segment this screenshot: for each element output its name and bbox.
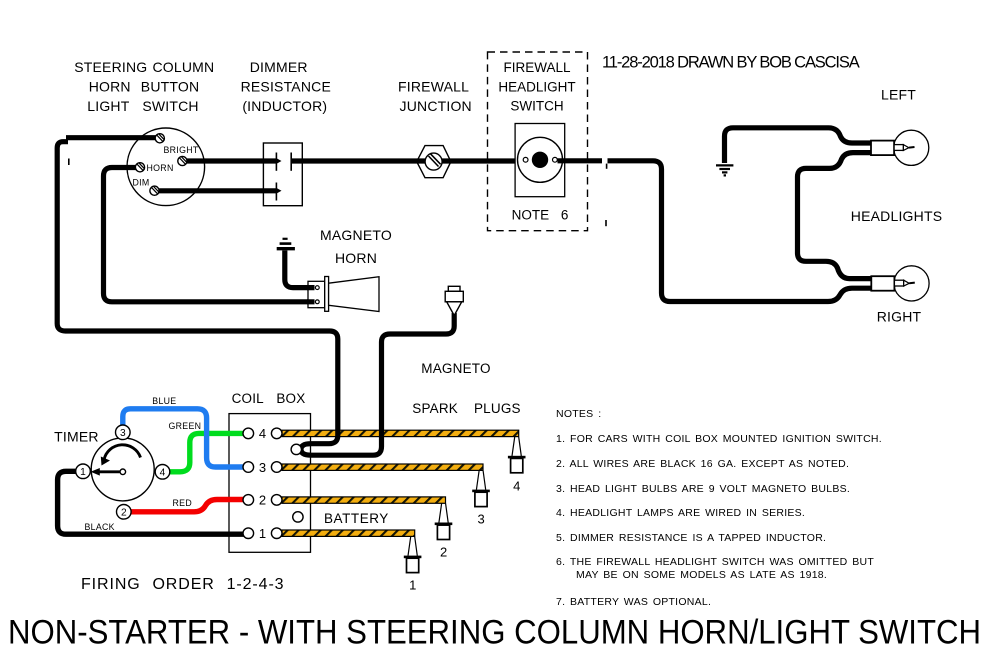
svg-text:3: 3 bbox=[120, 428, 126, 439]
svg-text:DIM: DIM bbox=[133, 178, 150, 188]
svg-text:4. HEADLIGHT LAMPS ARE WIRED: 4. HEADLIGHT LAMPS ARE WIRED IN SERIES. bbox=[556, 507, 805, 519]
svg-text:DIMMER: DIMMER bbox=[250, 59, 308, 75]
svg-text:FIREWALL: FIREWALL bbox=[503, 60, 571, 75]
svg-text:JUNCTION: JUNCTION bbox=[400, 98, 472, 114]
svg-text:HORN: HORN bbox=[335, 250, 377, 266]
svg-text:11-28-2018 DRAWN BY BOB CASCIS: 11-28-2018 DRAWN BY BOB CASCISA bbox=[602, 54, 860, 72]
svg-text:2: 2 bbox=[121, 507, 127, 518]
svg-text:MAGNETO: MAGNETO bbox=[320, 227, 392, 243]
svg-text:HEADLIGHTS: HEADLIGHTS bbox=[851, 208, 942, 224]
svg-text:6. THE FIREWALL HEADLIGHT SWI: 6. THE FIREWALL HEADLIGHT SWITCH WAS OMI… bbox=[556, 556, 874, 568]
svg-text:NOTE 6: NOTE 6 bbox=[512, 208, 569, 223]
svg-text:1: 1 bbox=[80, 467, 86, 478]
svg-text:MAGNETO: MAGNETO bbox=[421, 361, 490, 376]
svg-text:2: 2 bbox=[440, 545, 447, 560]
svg-text:LEFT: LEFT bbox=[881, 87, 916, 103]
svg-text:RED: RED bbox=[173, 498, 192, 508]
svg-text:5. DIMMER RESISTANCE IS A TAP: 5. DIMMER RESISTANCE IS A TAPPED INDUCTO… bbox=[556, 532, 826, 544]
svg-text:BRIGHT: BRIGHT bbox=[164, 145, 199, 155]
svg-text:COIL BOX: COIL BOX bbox=[232, 391, 306, 406]
svg-text:1: 1 bbox=[409, 578, 416, 593]
svg-text:4: 4 bbox=[513, 479, 520, 494]
svg-text:STEERING COLUMN: STEERING COLUMN bbox=[74, 59, 214, 75]
svg-text:1. FOR CARS WITH COIL BOX MOU: 1. FOR CARS WITH COIL BOX MOUNTED IGNITI… bbox=[556, 433, 882, 445]
svg-text:HEADLIGHT: HEADLIGHT bbox=[498, 80, 575, 95]
svg-text:3. HEAD LIGHT BULBS ARE 9 VOL: 3. HEAD LIGHT BULBS ARE 9 VOLT MAGNETO B… bbox=[556, 483, 850, 495]
svg-text:BATTERY: BATTERY bbox=[324, 511, 389, 526]
svg-text:NON-STARTER - WITH STEERING CO: NON-STARTER - WITH STEERING COLUMN HORN/… bbox=[8, 614, 981, 652]
svg-text:2. ALL WIRES ARE BLACK 16 GA.: 2. ALL WIRES ARE BLACK 16 GA. EXCEPT AS … bbox=[556, 458, 849, 470]
svg-text:FIREWALL: FIREWALL bbox=[398, 78, 469, 94]
svg-text:HORN: HORN bbox=[147, 163, 174, 173]
svg-text:1: 1 bbox=[259, 526, 266, 541]
svg-text:(INDUCTOR): (INDUCTOR) bbox=[242, 98, 327, 114]
svg-text:4: 4 bbox=[160, 467, 166, 478]
svg-text:BLUE: BLUE bbox=[152, 396, 176, 406]
svg-text:7. BATTERY WAS OPTIONAL.: 7. BATTERY WAS OPTIONAL. bbox=[556, 596, 711, 608]
svg-text:RIGHT: RIGHT bbox=[877, 309, 922, 325]
svg-text:NOTES :: NOTES : bbox=[556, 408, 601, 420]
svg-text:TIMER: TIMER bbox=[54, 429, 99, 445]
svg-text:FIRING ORDER 1-2-4-3: FIRING ORDER 1-2-4-3 bbox=[81, 576, 284, 593]
svg-text:LIGHT SWITCH: LIGHT SWITCH bbox=[87, 98, 198, 114]
svg-text:BLACK: BLACK bbox=[85, 522, 115, 532]
svg-text:3: 3 bbox=[477, 512, 484, 527]
svg-text:SPARK PLUGS: SPARK PLUGS bbox=[412, 401, 520, 416]
svg-text:HORN BUTTON: HORN BUTTON bbox=[89, 78, 200, 94]
svg-text:SWITCH: SWITCH bbox=[510, 99, 563, 114]
svg-text:4: 4 bbox=[259, 426, 266, 441]
svg-text:MAY BE ON SOME MODELS AS LATE: MAY BE ON SOME MODELS AS LATE AS 1918. bbox=[576, 569, 827, 581]
svg-text:GREEN: GREEN bbox=[169, 421, 202, 431]
svg-text:2: 2 bbox=[259, 493, 266, 508]
svg-text:RESISTANCE: RESISTANCE bbox=[241, 78, 331, 94]
svg-text:3: 3 bbox=[259, 460, 266, 475]
